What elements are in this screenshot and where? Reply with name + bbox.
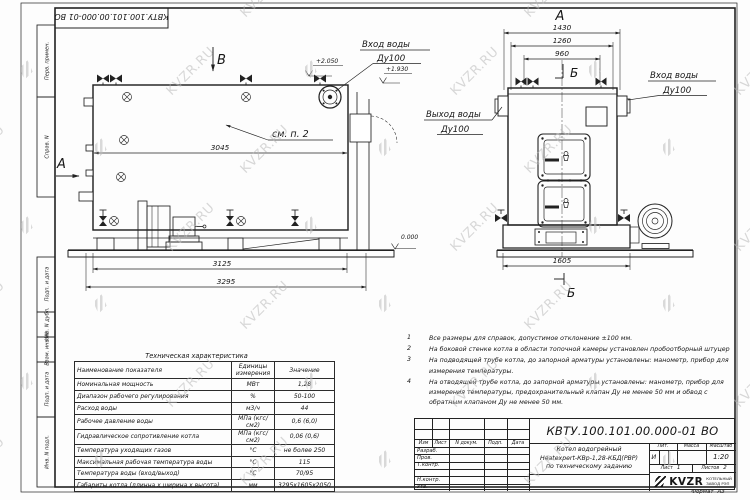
fitting-marks bbox=[110, 93, 251, 226]
sidebar-label: Подп. и дата bbox=[45, 267, 51, 302]
product-name-line3: по техническому заданию bbox=[546, 463, 632, 472]
col-ndoc: N докум. bbox=[449, 439, 484, 447]
lit-value: И bbox=[649, 450, 659, 464]
table-cell: Расход воды bbox=[75, 402, 232, 414]
role-razrab: Разраб. bbox=[417, 448, 449, 455]
table-cell: 1,28 bbox=[275, 379, 335, 391]
sheet-number: 1 bbox=[677, 465, 681, 471]
company-name: КОТЕЛЬНЫЙ ЗАВОД РЭП bbox=[706, 477, 732, 486]
table-row: Температура воды (вход/выход)°С70/95 bbox=[75, 468, 335, 480]
table-cell: 3295х1605х2050 bbox=[275, 480, 335, 492]
sheet-label: Лист bbox=[661, 466, 673, 471]
table-row: Гидравлическое сопротивление котлаМПа (к… bbox=[75, 429, 335, 444]
product-name-line2: Heatexpert-КВр-1,28-КБД(РВР) bbox=[540, 455, 638, 464]
table-cell: 50-100 bbox=[275, 390, 335, 402]
note-number: 4 bbox=[407, 378, 429, 409]
sidebar-column: Перв. примен. Справ. N Подп. и дата Инв.… bbox=[37, 25, 55, 487]
dim-1430-label: 1430 bbox=[553, 23, 572, 32]
outlet-callout: Выход воды Ду100 bbox=[424, 107, 502, 135]
dim-3125-label: 3125 bbox=[213, 259, 232, 268]
view-a-label: А bbox=[555, 9, 565, 24]
blower-fan-front bbox=[630, 204, 672, 249]
tech-header-units: Единицы измерения bbox=[232, 362, 275, 379]
table-cell: Рабочее давление воды bbox=[75, 414, 232, 429]
table-cell: Диапазон рабочего регулирования bbox=[75, 390, 232, 402]
side-view: 3045 3125 3295 +2.050 +1.930 0.000 Вход … bbox=[56, 40, 430, 291]
product-name-line1: Котел водогрейный bbox=[557, 446, 622, 455]
note-item: 2На боковой стенке котла в области топоч… bbox=[407, 345, 734, 355]
furnace-doors bbox=[538, 134, 590, 227]
table-cell: 70/95 bbox=[275, 468, 335, 480]
level-2050-label: +2.050 bbox=[316, 58, 338, 65]
tech-table-title: Техническая характеристика bbox=[74, 352, 319, 360]
section-b-top-label: Б bbox=[570, 66, 578, 80]
table-cell: 115 bbox=[275, 456, 335, 468]
note-text: На отводящей трубе котла, до запорной ар… bbox=[429, 378, 734, 409]
table-cell: не более 250 bbox=[275, 444, 335, 456]
note-number: 1 bbox=[407, 334, 429, 344]
table-cell: % bbox=[232, 390, 275, 402]
table-cell: Температура уходящих газов bbox=[75, 444, 232, 456]
kvzr-stripes-icon bbox=[653, 476, 666, 487]
see-note-label: см. п. 2 bbox=[272, 129, 309, 140]
sidebar-label: Подп. и дата bbox=[45, 372, 51, 407]
section-b-label: В bbox=[217, 53, 226, 68]
level-marks: +2.050 +1.930 0.000 bbox=[306, 58, 419, 249]
sidebar-label: Перв. примен. bbox=[45, 42, 51, 80]
inlet-flange bbox=[319, 86, 341, 108]
product-name: Котел водогрейный Heatexpert-КВр-1,28-КБ… bbox=[529, 444, 649, 474]
document-designation: КВТУ.100.101.00.000-01 ВО bbox=[529, 419, 736, 443]
note-item: 3На подводящей трубе котла, до запорной … bbox=[407, 356, 734, 376]
dim-3045-label: 3045 bbox=[211, 143, 230, 152]
bottom-valves bbox=[99, 210, 299, 226]
dim-960-label: 960 bbox=[555, 49, 569, 58]
role-nkontr: Н.контр. bbox=[417, 477, 449, 484]
table-row: Расход водым3/ч44 bbox=[75, 402, 335, 414]
col-list: Лист bbox=[432, 439, 449, 447]
outlet-water-label: Выход воды bbox=[426, 110, 481, 120]
dim-1605-label: 1605 bbox=[553, 256, 572, 265]
note-text: Все размеры для справок, допустимое откл… bbox=[429, 334, 734, 344]
sidebar-label: Справ. N bbox=[45, 135, 51, 158]
kvzr-logo-text: KVZR bbox=[669, 476, 703, 488]
tech-table: Наименование показателя Единицы измерени… bbox=[74, 361, 335, 492]
table-row: Температура уходящих газов°Сне более 250 bbox=[75, 444, 335, 456]
dim-1260-label: 1260 bbox=[553, 36, 572, 45]
notes-list: 1Все размеры для справок, допустимое отк… bbox=[407, 334, 734, 409]
mass-header: Масса bbox=[677, 443, 706, 450]
front-view: А 1430 1260 960 Б Б bbox=[424, 9, 716, 300]
table-cell: 0,06 (0,6) bbox=[275, 429, 335, 444]
inlet-dn-front-label: Ду100 bbox=[662, 86, 692, 96]
table-cell: 0,6 (6,0) bbox=[275, 414, 335, 429]
outlet-duct bbox=[350, 92, 397, 250]
table-cell: м3/ч bbox=[232, 402, 275, 414]
engineering-drawing-sheet: Перв. примен. Справ. N Подп. и дата Инв.… bbox=[0, 0, 750, 500]
note-number: 2 bbox=[407, 345, 429, 355]
inlet-dn-label: Ду100 bbox=[376, 54, 406, 64]
see-note-callout: см. п. 2 bbox=[226, 125, 333, 140]
table-cell: °С bbox=[232, 456, 275, 468]
level-1930-label: +1.930 bbox=[386, 66, 408, 73]
table-cell: Гидравлическое сопротивление котла bbox=[75, 429, 232, 444]
role-prov: Пров. bbox=[417, 455, 449, 462]
blower-assembly bbox=[138, 201, 206, 250]
outlet-dn-label: Ду100 bbox=[440, 125, 470, 135]
inlet-water-front-label: Вход воды bbox=[650, 71, 698, 81]
note-item: 1Все размеры для справок, допустимое отк… bbox=[407, 334, 734, 344]
table-cell: °С bbox=[232, 468, 275, 480]
table-row: Диапазон рабочего регулирования%50-100 bbox=[75, 390, 335, 402]
role-utv: Утв. bbox=[417, 484, 449, 491]
top-valves bbox=[97, 75, 326, 86]
tech-header-value: Значение bbox=[275, 362, 335, 379]
inlet-water-label: Вход воды bbox=[362, 40, 410, 50]
table-row: Габариты котла (длинна х ширина х высота… bbox=[75, 480, 335, 492]
table-cell: Номинальная мощность bbox=[75, 379, 232, 391]
top-stamp: КВТУ.100.101.00.000-01 ВО bbox=[54, 8, 168, 28]
table-row: Номинальная мощностьМВт1,28 bbox=[75, 379, 335, 391]
table-cell: 44 bbox=[275, 402, 335, 414]
tech-table-section: Техническая характеристика Наименование … bbox=[74, 352, 319, 492]
table-row: Рабочее давление водыМПа (кгс/см2)0,6 (6… bbox=[75, 414, 335, 429]
sidebar-label: Взам. инв. N bbox=[45, 332, 51, 365]
scale-header: Масштаб bbox=[706, 443, 736, 450]
table-cell: МПа (кгс/см2) bbox=[232, 429, 275, 444]
table-cell: Максимальная рабочая температура воды bbox=[75, 456, 232, 468]
front-top-valves bbox=[516, 78, 607, 89]
level-zero-label: 0.000 bbox=[401, 234, 418, 241]
section-a-label: А bbox=[56, 157, 66, 172]
sheets-number: 2 bbox=[723, 465, 727, 471]
inlet-callout-front: Вход воды Ду100 bbox=[628, 71, 716, 100]
scale-value: 1:20 bbox=[706, 450, 736, 464]
dimensions-side: 3045 3125 3295 bbox=[86, 143, 366, 291]
col-data: Дата bbox=[507, 439, 529, 447]
table-cell: Габариты котла (длинна х ширина х высота… bbox=[75, 480, 232, 492]
title-block: КВТУ.100.101.00.000-01 ВО Изм Лист N док… bbox=[414, 418, 735, 490]
lit-header: Лит. bbox=[649, 443, 677, 450]
table-cell: Температура воды (вход/выход) bbox=[75, 468, 232, 480]
tech-header-name: Наименование показателя bbox=[75, 362, 232, 379]
table-cell: МВт bbox=[232, 379, 275, 391]
role-tkontr: Т.контр. bbox=[417, 462, 449, 469]
note-text: На боковой стенке котла в области топочн… bbox=[429, 345, 734, 355]
sidebar-label: Инв. N подл. bbox=[45, 435, 51, 469]
drain-valves bbox=[495, 210, 630, 222]
col-izm: Изм bbox=[415, 439, 432, 447]
table-cell: мм bbox=[232, 480, 275, 492]
tech-table-body: Номинальная мощностьМВт1,28Диапазон рабо… bbox=[75, 379, 335, 492]
note-text: На подводящей трубе котла, до запорной а… bbox=[429, 356, 734, 376]
col-podp: Подп. bbox=[484, 439, 507, 447]
note-item: 4На отводящей трубе котла, до запорной а… bbox=[407, 378, 734, 409]
dim-3295-label: 3295 bbox=[217, 277, 236, 286]
stamp-text: КВТУ.100.101.00.000-01 ВО bbox=[54, 12, 168, 21]
note-number: 3 bbox=[407, 356, 429, 376]
format-note: Формат А3 bbox=[676, 489, 740, 495]
section-b-bottom-label: Б bbox=[567, 286, 575, 300]
table-cell: °С bbox=[232, 444, 275, 456]
sheets-label: Листов bbox=[701, 466, 719, 471]
table-cell: МПа (кгс/см2) bbox=[232, 414, 275, 429]
table-row: Максимальная рабочая температура воды°С1… bbox=[75, 456, 335, 468]
